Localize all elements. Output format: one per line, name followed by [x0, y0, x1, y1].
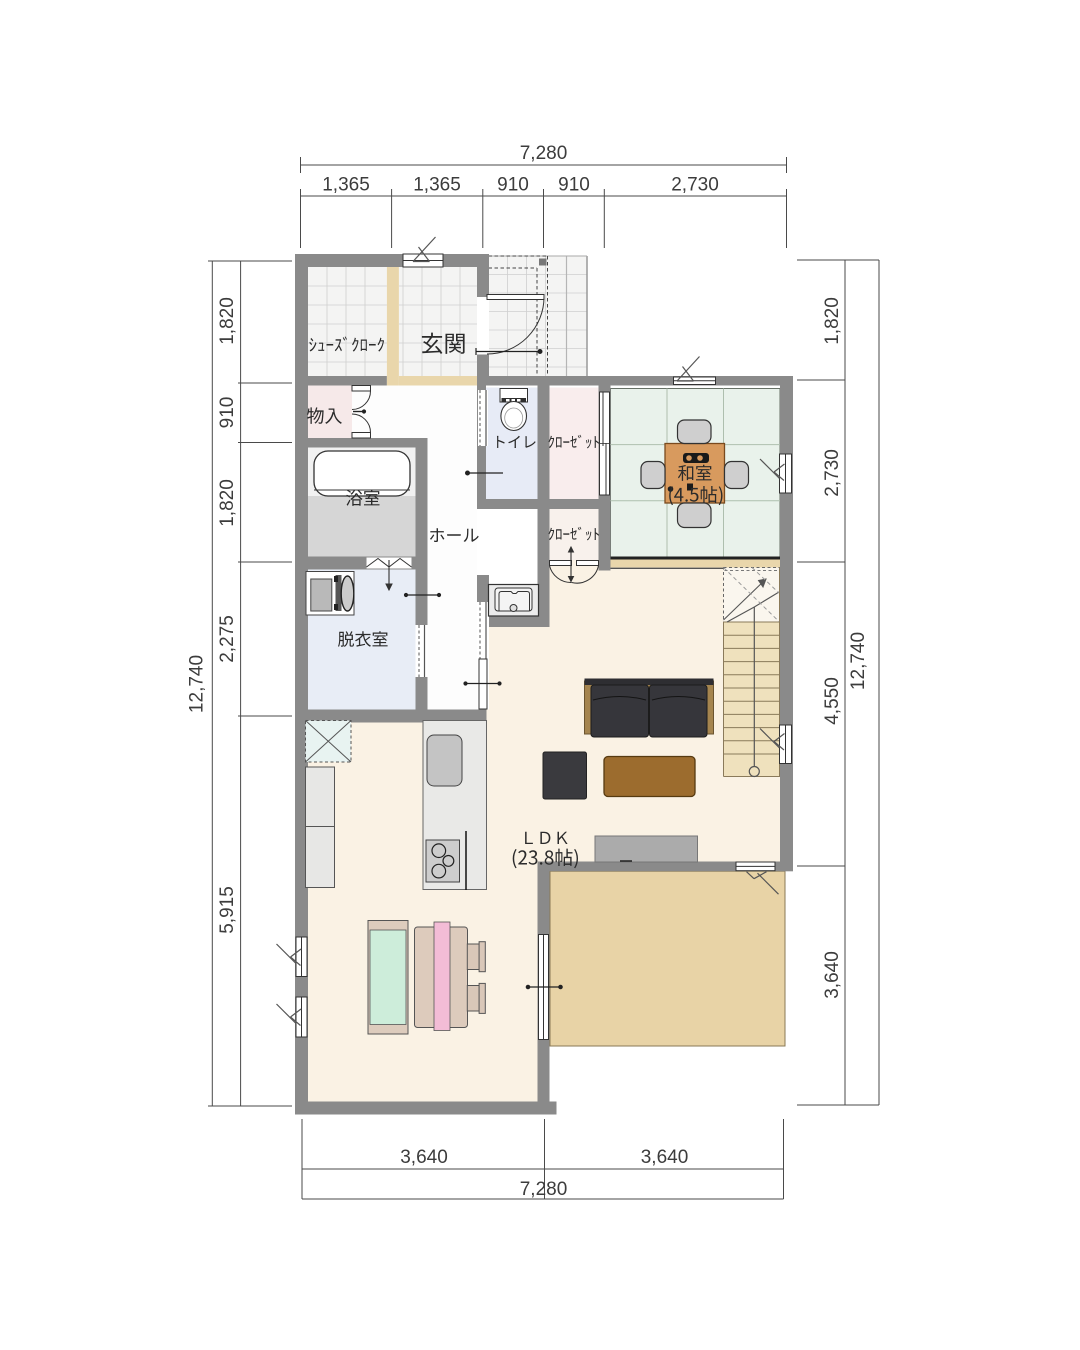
svg-text:2,275: 2,275 [217, 615, 238, 663]
svg-text:2,730: 2,730 [671, 175, 719, 196]
svg-text:910: 910 [217, 397, 238, 429]
svg-text:3,640: 3,640 [400, 1147, 448, 1168]
svg-text:5,915: 5,915 [217, 886, 238, 934]
svg-text:910: 910 [558, 175, 590, 196]
svg-text:12,740: 12,740 [848, 632, 869, 690]
svg-text:7,280: 7,280 [520, 1179, 568, 1200]
svg-text:1,820: 1,820 [217, 297, 238, 345]
svg-text:1,365: 1,365 [322, 175, 370, 196]
svg-text:3,640: 3,640 [822, 951, 843, 999]
svg-text:4,550: 4,550 [822, 677, 843, 725]
svg-text:2,730: 2,730 [822, 449, 843, 497]
svg-text:7,280: 7,280 [520, 143, 568, 164]
svg-text:1,365: 1,365 [413, 175, 461, 196]
svg-text:1,820: 1,820 [217, 479, 238, 527]
svg-text:3,640: 3,640 [641, 1147, 689, 1168]
svg-text:1,820: 1,820 [822, 297, 843, 345]
svg-text:910: 910 [497, 175, 529, 196]
svg-text:12,740: 12,740 [187, 655, 208, 713]
